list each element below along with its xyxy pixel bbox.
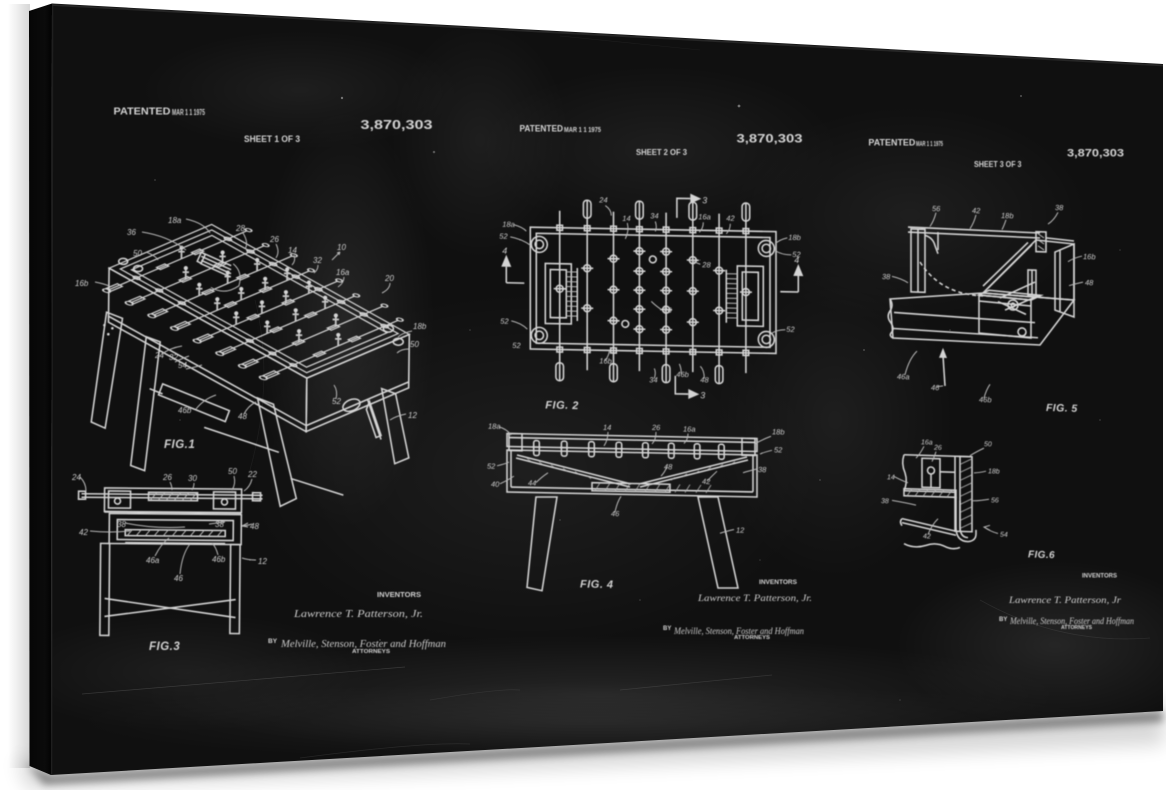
svg-text:52: 52 [332,397,341,406]
svg-text:MAR 1 1 1975: MAR 1 1 1975 [564,125,601,134]
svg-text:16b: 16b [75,279,89,288]
svg-text:18a: 18a [168,216,182,225]
svg-text:16b: 16b [1083,252,1096,261]
svg-text:3,870,303: 3,870,303 [737,132,803,146]
svg-text:16a: 16a [921,439,933,446]
svg-text:38: 38 [215,520,224,529]
svg-text:56: 56 [991,497,999,504]
svg-text:28: 28 [235,224,245,233]
svg-text:38: 38 [882,272,891,281]
svg-text:46b: 46b [979,395,992,404]
svg-text:ATTORNEYS: ATTORNEYS [1061,625,1092,631]
svg-text:12: 12 [258,557,267,566]
svg-text:ATTORNEYS: ATTORNEYS [352,649,390,655]
svg-text:18b: 18b [1001,211,1014,220]
svg-text:SHEET 1 OF 3: SHEET 1 OF 3 [244,134,300,144]
svg-text:FIG. 2: FIG. 2 [545,399,579,412]
svg-text:PATENTED: PATENTED [520,124,564,134]
svg-text:4: 4 [502,246,507,256]
svg-text:3: 3 [702,195,707,205]
svg-text:26: 26 [933,445,942,452]
svg-text:42: 42 [972,206,981,215]
svg-text:52: 52 [499,232,508,241]
svg-text:16b: 16b [599,356,612,365]
svg-text:3: 3 [700,390,705,400]
svg-text:3,870,303: 3,870,303 [361,117,433,132]
svg-text:Lawrence T. Patterson, Jr.: Lawrence T. Patterson, Jr. [293,609,423,620]
svg-text:26: 26 [162,473,172,482]
svg-text:16a: 16a [698,212,711,221]
svg-text:30: 30 [188,474,197,483]
svg-text:48: 48 [250,522,259,531]
svg-text:PATENTED: PATENTED [114,107,171,118]
svg-text:16a: 16a [336,268,350,277]
svg-text:48: 48 [700,375,709,384]
svg-text:18b: 18b [988,468,1000,475]
svg-text:56: 56 [932,204,941,213]
svg-text:INVENTORS: INVENTORS [1082,573,1118,580]
svg-text:46: 46 [931,383,940,392]
svg-text:46b: 46b [212,555,226,564]
svg-text:INVENTORS: INVENTORS [759,579,798,586]
svg-text:32: 32 [313,256,322,265]
svg-text:52: 52 [487,462,496,471]
svg-text:50: 50 [133,249,142,258]
svg-text:50: 50 [984,441,992,448]
svg-text:18a: 18a [502,220,515,229]
svg-text:16a: 16a [683,425,696,434]
svg-text:46a: 46a [897,372,910,381]
svg-text:22: 22 [247,470,257,479]
svg-text:SHEET 3 OF 3: SHEET 3 OF 3 [974,159,1022,169]
svg-text:FIG. 4: FIG. 4 [580,578,614,591]
svg-text:46b: 46b [676,370,689,379]
svg-text:FIG.3: FIG.3 [149,641,180,653]
svg-text:18a: 18a [488,422,501,431]
svg-text:38: 38 [1055,203,1064,212]
svg-text:44: 44 [528,478,536,487]
svg-text:54: 54 [1000,532,1008,539]
svg-text:24: 24 [154,351,164,360]
svg-text:Lawrence T. Patterson, Jr.: Lawrence T. Patterson, Jr. [697,594,812,604]
svg-text:14: 14 [622,214,630,223]
svg-text:18b: 18b [413,322,427,331]
svg-text:26: 26 [662,306,672,315]
svg-text:INVENTORS: INVENTORS [377,592,421,599]
svg-text:MAR 1 1 1975: MAR 1 1 1975 [172,108,205,117]
svg-text:10: 10 [337,243,346,252]
svg-text:52: 52 [512,341,521,350]
svg-text:42: 42 [79,528,88,537]
svg-text:38: 38 [758,465,767,474]
svg-text:FIG.1: FIG.1 [164,439,195,451]
svg-text:52: 52 [792,250,801,259]
svg-text:Lawrence T. Patterson, Jr: Lawrence T. Patterson, Jr [1008,596,1121,606]
svg-text:50: 50 [228,467,237,476]
svg-text:26: 26 [651,423,661,432]
svg-text:52: 52 [786,325,795,334]
svg-text:14: 14 [603,423,611,432]
svg-text:34: 34 [650,211,658,220]
svg-text:PATENTED: PATENTED [868,138,915,148]
svg-text:BY: BY [663,626,671,632]
svg-text:FIG.6: FIG.6 [1028,549,1055,561]
svg-text:46b: 46b [178,406,192,415]
svg-text:42: 42 [923,533,931,540]
svg-text:48: 48 [1085,278,1094,287]
svg-text:36: 36 [127,228,136,237]
svg-text:18b: 18b [788,233,801,242]
svg-text:52: 52 [500,317,509,326]
svg-text:46: 46 [174,574,183,583]
svg-text:34: 34 [649,375,657,384]
svg-text:MAR 1 1 1975: MAR 1 1 1975 [916,141,943,148]
svg-text:ATTORNEYS: ATTORNEYS [734,635,770,641]
svg-text:24: 24 [598,195,607,204]
svg-text:FIG. 5: FIG. 5 [1046,402,1078,415]
svg-text:BY: BY [268,638,278,645]
svg-text:26: 26 [269,235,279,244]
svg-text:BY: BY [999,617,1007,623]
svg-text:52: 52 [774,445,783,454]
svg-text:14: 14 [887,474,895,481]
svg-text:38: 38 [881,498,889,505]
svg-text:42: 42 [726,214,735,223]
svg-text:20: 20 [384,274,394,283]
svg-text:28: 28 [701,260,711,269]
svg-text:12: 12 [736,526,745,535]
svg-text:48: 48 [238,412,247,421]
svg-text:14: 14 [288,246,297,255]
svg-text:18b: 18b [772,427,785,436]
svg-text:40: 40 [491,480,500,489]
svg-text:46a: 46a [146,556,160,565]
svg-text:12: 12 [408,411,417,420]
svg-text:3,870,303: 3,870,303 [1067,148,1124,160]
svg-text:50: 50 [410,340,419,349]
svg-text:38: 38 [117,520,126,529]
svg-text:SHEET 2 OF 3: SHEET 2 OF 3 [636,147,687,157]
